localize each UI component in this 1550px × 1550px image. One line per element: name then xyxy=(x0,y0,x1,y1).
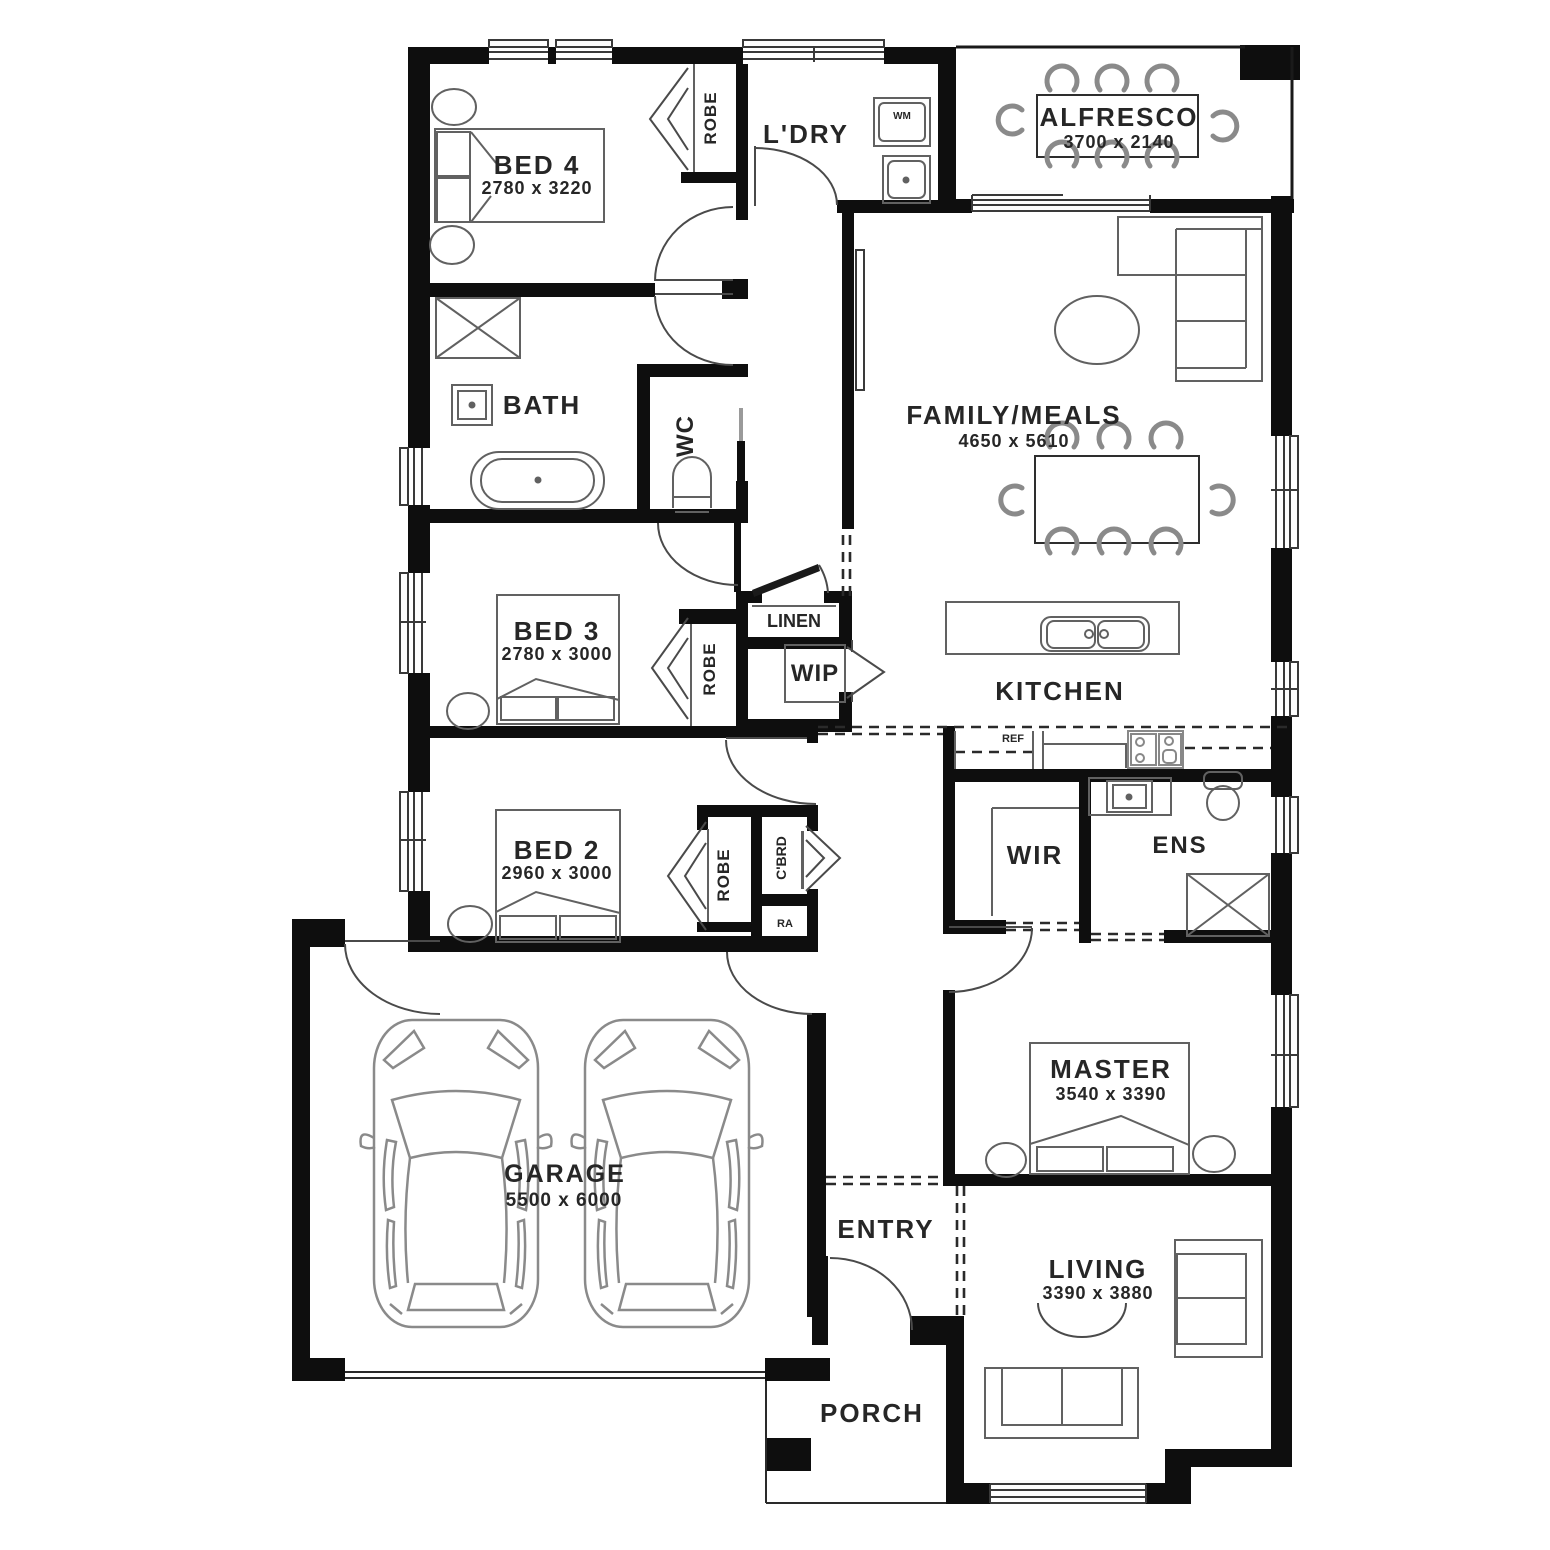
svg-text:ROBE: ROBE xyxy=(700,642,719,695)
svg-text:3540 x 3390: 3540 x 3390 xyxy=(1055,1084,1166,1104)
svg-text:2780 x 3220: 2780 x 3220 xyxy=(481,178,592,198)
svg-text:ROBE: ROBE xyxy=(714,848,733,901)
svg-text:REF: REF xyxy=(1002,733,1024,745)
svg-text:ALFRESCO: ALFRESCO xyxy=(1040,102,1199,132)
svg-text:ENS: ENS xyxy=(1152,832,1207,859)
svg-text:BATH: BATH xyxy=(503,390,581,420)
svg-text:KITCHEN: KITCHEN xyxy=(995,676,1125,706)
svg-text:MASTER: MASTER xyxy=(1050,1054,1172,1084)
svg-text:BED 2: BED 2 xyxy=(514,835,601,865)
svg-text:WC: WC xyxy=(672,415,699,457)
svg-text:C'BRD: C'BRD xyxy=(773,836,789,880)
svg-text:PORCH: PORCH xyxy=(820,1398,924,1428)
svg-text:4650 x 5610: 4650 x 5610 xyxy=(958,431,1069,451)
svg-text:LINEN: LINEN xyxy=(767,611,821,631)
svg-text:ENTRY: ENTRY xyxy=(837,1214,934,1244)
svg-text:RA: RA xyxy=(777,918,793,930)
svg-text:3700 x 2140: 3700 x 2140 xyxy=(1063,132,1174,152)
svg-text:GARAGE: GARAGE xyxy=(504,1160,626,1188)
svg-text:2960 x 3000: 2960 x 3000 xyxy=(501,863,612,883)
svg-text:LIVING: LIVING xyxy=(1049,1254,1148,1284)
svg-text:WIP: WIP xyxy=(791,660,839,687)
svg-text:FAMILY/MEALS: FAMILY/MEALS xyxy=(906,400,1121,430)
svg-text:ROBE: ROBE xyxy=(701,91,720,144)
svg-text:BED 4: BED 4 xyxy=(494,150,581,180)
svg-text:3390 x 3880: 3390 x 3880 xyxy=(1042,1283,1153,1303)
svg-text:WM: WM xyxy=(893,111,911,122)
svg-text:WIR: WIR xyxy=(1007,840,1064,870)
svg-text:L'DRY: L'DRY xyxy=(763,119,849,149)
svg-text:BED 3: BED 3 xyxy=(514,616,601,646)
svg-text:2780 x 3000: 2780 x 3000 xyxy=(501,644,612,664)
svg-text:5500 x 6000: 5500 x 6000 xyxy=(506,1190,623,1211)
